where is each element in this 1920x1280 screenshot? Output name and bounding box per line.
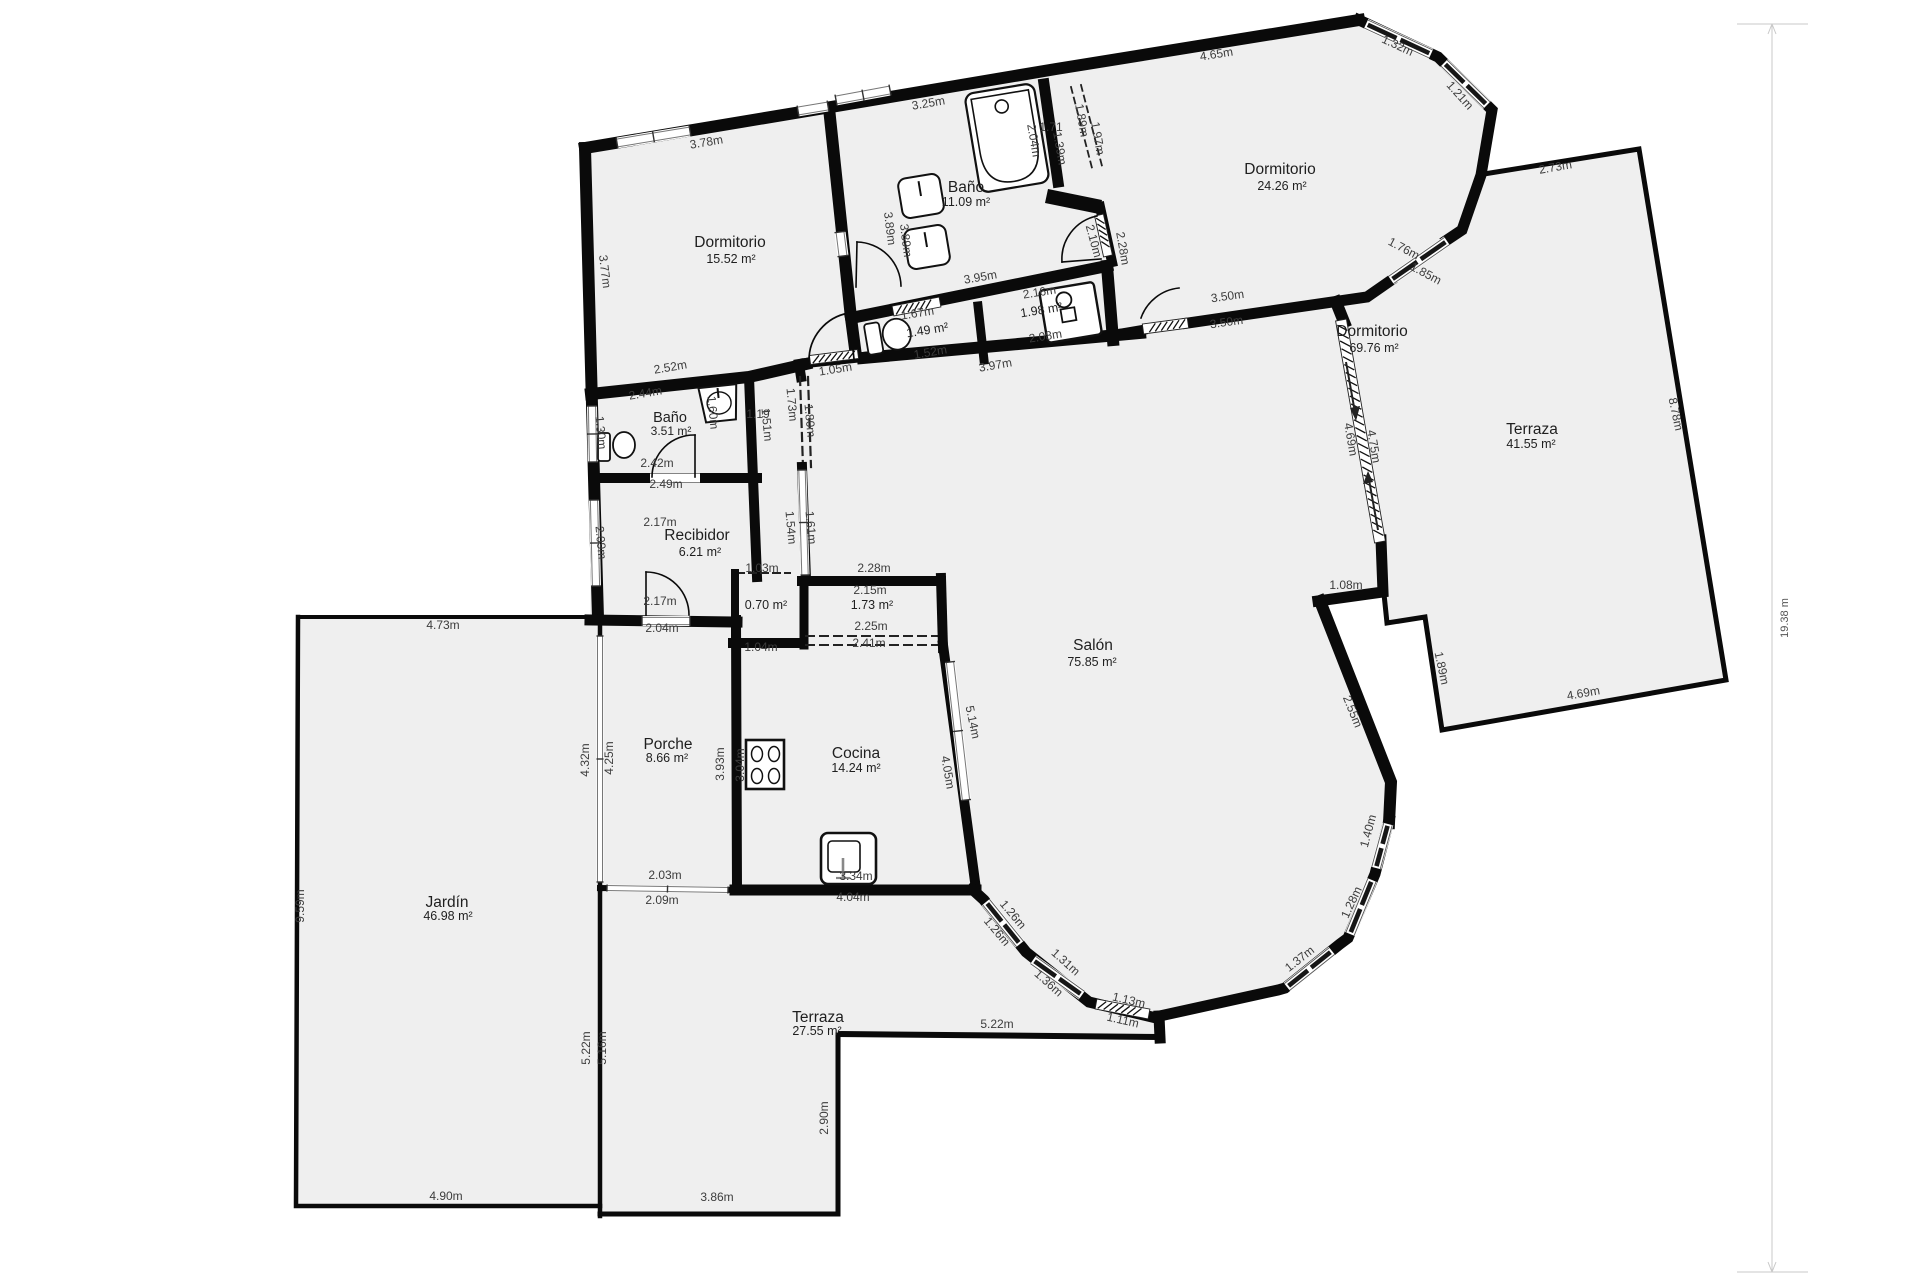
svg-text:1.61m: 1.61m: [803, 510, 820, 544]
svg-text:1.60m: 1.60m: [705, 395, 722, 429]
svg-text:69.76 m²: 69.76 m²: [1349, 341, 1398, 355]
svg-text:19.38 m: 19.38 m: [1779, 598, 1791, 638]
svg-text:5.16m: 5.16m: [595, 1031, 609, 1064]
svg-text:14.24 m²: 14.24 m²: [831, 761, 880, 775]
svg-text:75.85 m²: 75.85 m²: [1067, 655, 1116, 669]
svg-text:Dormitorio: Dormitorio: [1244, 161, 1315, 178]
svg-text:Salón: Salón: [1073, 637, 1113, 654]
svg-text:2.49m: 2.49m: [649, 477, 682, 491]
svg-text:2.17m: 2.17m: [643, 594, 676, 608]
svg-text:15.52 m²: 15.52 m²: [706, 252, 755, 266]
svg-text:1.80m: 1.80m: [802, 403, 819, 437]
svg-text:1.30m: 1.30m: [593, 415, 610, 449]
svg-text:2.09m: 2.09m: [645, 893, 678, 907]
svg-text:2.25m: 2.25m: [854, 619, 887, 633]
svg-text:3.93m: 3.93m: [713, 747, 727, 780]
svg-text:1.73 m²: 1.73 m²: [851, 598, 893, 612]
svg-text:41.55 m²: 41.55 m²: [1506, 437, 1555, 451]
svg-text:Dormitorio: Dormitorio: [1336, 323, 1407, 340]
svg-text:1.73m: 1.73m: [784, 387, 801, 421]
svg-text:3.34m: 3.34m: [839, 869, 872, 883]
svg-text:11.09 m²: 11.09 m²: [942, 195, 990, 209]
svg-text:3.51 m²: 3.51 m²: [651, 424, 692, 438]
svg-text:2.04m: 2.04m: [645, 621, 678, 635]
svg-text:5.22m: 5.22m: [579, 1031, 593, 1064]
svg-text:Recibidor: Recibidor: [664, 527, 729, 544]
svg-text:2.09m: 2.09m: [593, 525, 610, 559]
svg-text:27.55 m²: 27.55 m²: [792, 1024, 841, 1038]
svg-text:24.26 m²: 24.26 m²: [1257, 179, 1306, 193]
svg-text:2.28m: 2.28m: [857, 561, 890, 575]
svg-text:2.15m: 2.15m: [853, 583, 886, 597]
svg-text:46.98 m²: 46.98 m²: [423, 909, 472, 923]
svg-text:2.17m: 2.17m: [643, 515, 676, 529]
svg-text:1.08m: 1.08m: [1329, 578, 1362, 592]
svg-text:4.90m: 4.90m: [429, 1189, 462, 1203]
svg-text:Baño: Baño: [948, 179, 984, 196]
svg-text:2.90m: 2.90m: [817, 1101, 831, 1134]
svg-text:1.51m: 1.51m: [759, 407, 776, 441]
svg-text:4.25m: 4.25m: [602, 741, 616, 774]
svg-text:2.03m: 2.03m: [648, 868, 681, 882]
svg-text:2.41m: 2.41m: [852, 636, 885, 650]
svg-text:Cocina: Cocina: [832, 745, 881, 762]
svg-text:2.42m: 2.42m: [640, 456, 673, 470]
svg-text:8.66 m²: 8.66 m²: [646, 751, 688, 765]
svg-text:0.70 m²: 0.70 m²: [745, 598, 787, 612]
svg-text:5.22m: 5.22m: [980, 1017, 1013, 1031]
svg-text:3.86m: 3.86m: [700, 1190, 733, 1204]
svg-text:1.54m: 1.54m: [783, 510, 800, 544]
svg-text:Dormitorio: Dormitorio: [694, 234, 765, 251]
svg-text:1.04m: 1.04m: [744, 640, 777, 654]
svg-text:Terraza: Terraza: [1506, 421, 1558, 438]
svg-text:4.32m: 4.32m: [578, 743, 592, 776]
svg-text:4.73m: 4.73m: [426, 618, 459, 632]
svg-text:9.59m: 9.59m: [293, 889, 307, 922]
svg-text:6.21 m²: 6.21 m²: [679, 545, 721, 559]
svg-text:3.04m: 3.04m: [733, 748, 747, 781]
svg-text:1.03m: 1.03m: [745, 561, 778, 575]
svg-text:4.04m: 4.04m: [836, 890, 869, 904]
